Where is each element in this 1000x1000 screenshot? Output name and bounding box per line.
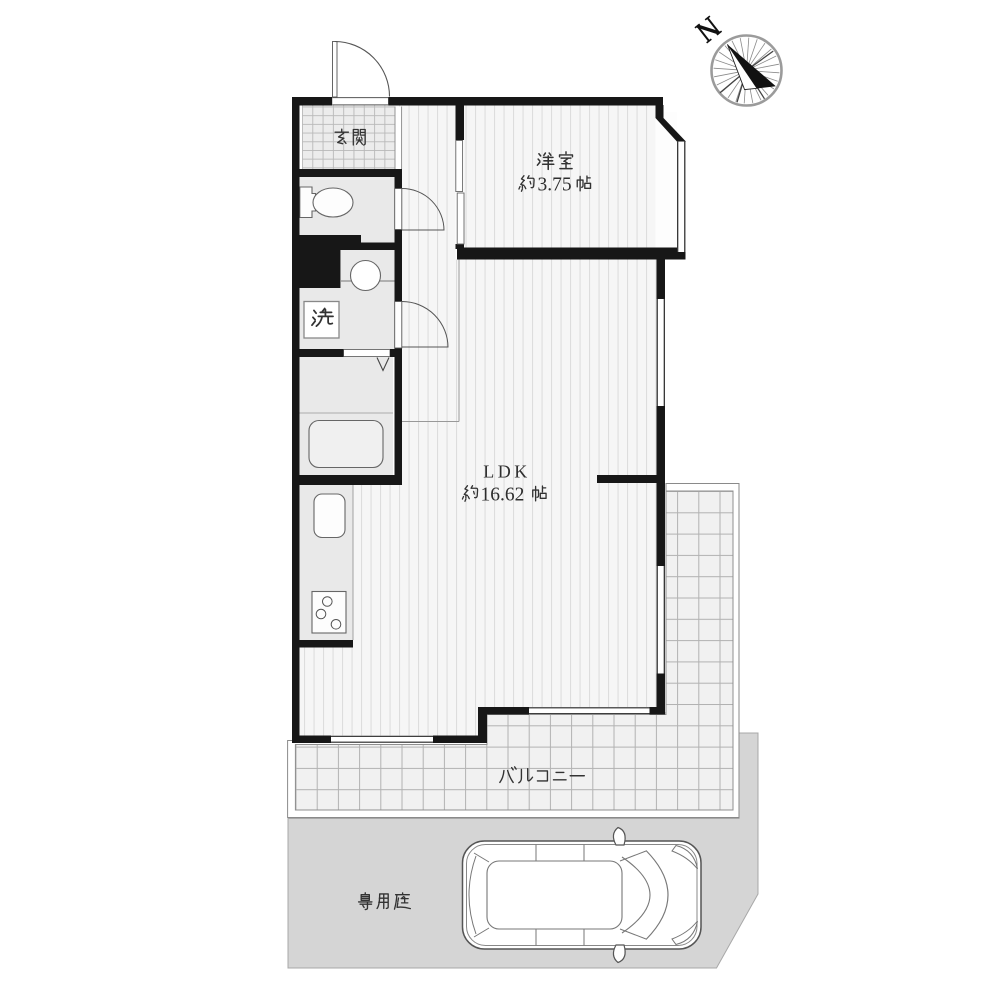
svg-text:LDK: LDK: [483, 462, 531, 482]
svg-text:16.62: 16.62: [481, 485, 525, 506]
svg-text:3.75: 3.75: [538, 175, 572, 196]
